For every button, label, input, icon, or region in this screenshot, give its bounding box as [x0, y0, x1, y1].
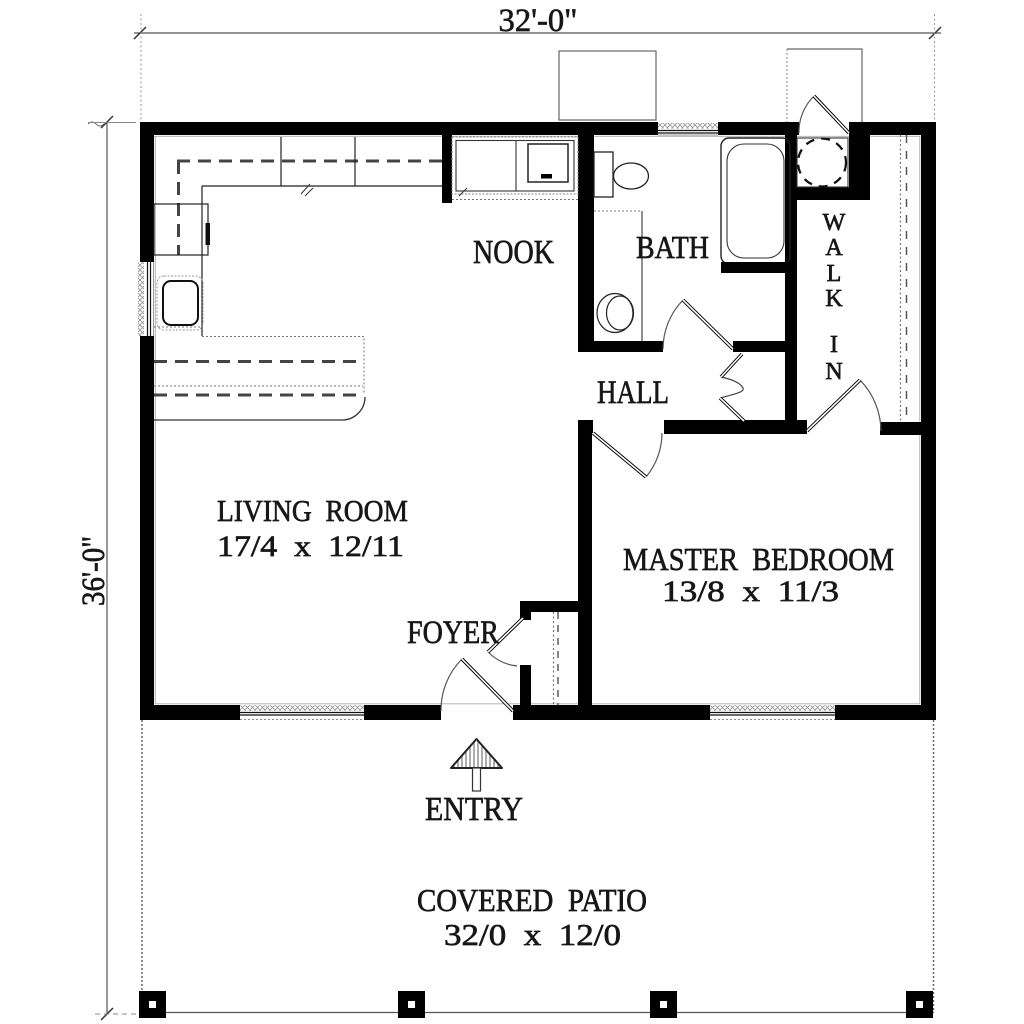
svg-text:BATH: BATH — [636, 229, 709, 265]
svg-text:N: N — [825, 359, 842, 385]
svg-text:13/8 x 11/3: 13/8 x 11/3 — [662, 575, 839, 608]
svg-text:NOOK: NOOK — [473, 234, 554, 271]
svg-text:17/4 x 12/11: 17/4 x 12/11 — [217, 530, 404, 563]
svg-text:K: K — [825, 286, 843, 312]
svg-text:I: I — [830, 332, 838, 358]
svg-text:COVERED PATIO: COVERED PATIO — [417, 882, 647, 918]
svg-text:HALL: HALL — [597, 375, 669, 411]
svg-text:ENTRY: ENTRY — [425, 791, 523, 828]
svg-text:L: L — [827, 261, 842, 287]
svg-text:FOYER: FOYER — [407, 615, 499, 651]
svg-text:MASTER BEDROOM: MASTER BEDROOM — [623, 541, 894, 577]
svg-text:36'-0": 36'-0" — [76, 536, 112, 606]
svg-text:32'-0": 32'-0" — [499, 3, 578, 39]
svg-text:A: A — [825, 235, 843, 261]
svg-text:W: W — [823, 210, 846, 236]
svg-text:LIVING ROOM: LIVING ROOM — [217, 493, 408, 528]
svg-text:32/0 x 12/0: 32/0 x 12/0 — [444, 917, 621, 952]
